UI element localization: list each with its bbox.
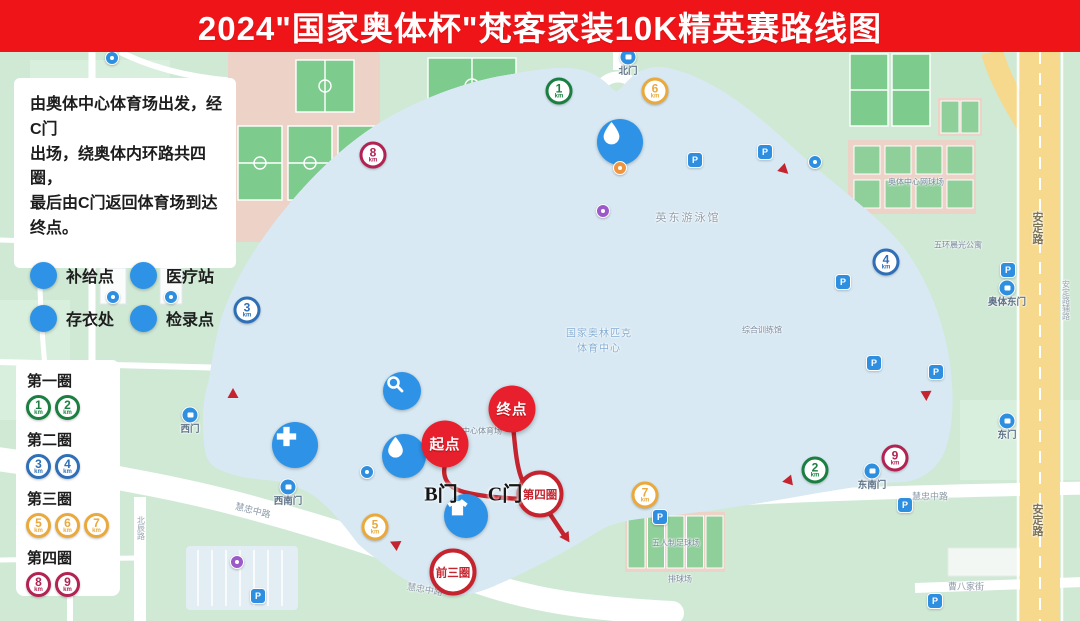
parking-icon: P xyxy=(652,509,668,525)
route-description-line: 最后由C门返回体育场到达终点。 xyxy=(30,192,224,242)
legend-item: 补给点 xyxy=(30,262,124,289)
lap-km-badge: 6km xyxy=(55,513,80,538)
legend-label: 补给点 xyxy=(66,263,114,287)
parking-icon: P xyxy=(866,355,882,371)
map-label: 五环晨光公寓 xyxy=(934,240,982,251)
route-description-line: 由奥体中心体育场出发，经C门 xyxy=(30,93,224,143)
route-km-marker: 9km xyxy=(882,445,909,472)
gate-label: 东门 xyxy=(997,427,1016,441)
lap-group: 第一圈 1km2km xyxy=(26,370,120,420)
water-drop-icon xyxy=(382,434,426,478)
route-km-marker: 1km xyxy=(546,78,573,105)
parking-icon: P xyxy=(250,588,266,604)
route-km-marker: 5km xyxy=(362,514,389,541)
parking-icon: P xyxy=(835,274,851,290)
page-title: 2024"国家奥体杯"梵客家装10K精英赛路线图 xyxy=(198,2,882,50)
map-label: 体育中心 xyxy=(577,340,621,355)
magnifier-icon xyxy=(383,372,421,410)
map-label: 综合训练馆 xyxy=(742,325,782,336)
parking-icon: P xyxy=(1000,262,1016,278)
parking-icon: P xyxy=(897,497,913,513)
gate-label: 西南门 xyxy=(274,493,303,507)
map-poi-icon xyxy=(613,161,627,175)
route-km-marker: 2km xyxy=(802,457,829,484)
info-panel: 由奥体中心体育场出发，经C门 出场，绕奥体内环路共四圈， 最后由C门返回体育场到… xyxy=(14,78,236,268)
map-poi-icon xyxy=(230,555,244,569)
map-label: 中心体育场 xyxy=(462,426,502,437)
map-label: 北辰路 xyxy=(136,516,147,540)
map-label: 英东游泳馆 xyxy=(656,209,721,225)
lap-name: 第二圈 xyxy=(27,429,120,450)
map-label: 慧忠中路 xyxy=(234,499,272,520)
map-label: 安定路辅路 xyxy=(1061,280,1072,320)
map-label: 五人制足球场 xyxy=(652,538,700,549)
route-km-marker: 6km xyxy=(642,78,669,105)
lap-km-badge: 1km xyxy=(26,395,51,420)
map-label: 安定路 xyxy=(1029,504,1045,537)
map-poi-icon xyxy=(596,204,610,218)
water-drop-icon xyxy=(597,119,643,165)
map-label: 排球场 xyxy=(668,574,692,585)
legend-item: 检录点 xyxy=(130,305,224,332)
finish-marker: 终点 xyxy=(489,386,536,433)
lap-km-badge: 5km xyxy=(26,513,51,538)
route-description-line: 出场，绕奥体内环路共四圈， xyxy=(30,143,224,193)
lap-km-badge: 3km xyxy=(26,454,51,479)
lap-km-badge: 4km xyxy=(55,454,80,479)
lap-km-badge: 7km xyxy=(84,513,109,538)
magnifier-icon xyxy=(130,305,157,332)
map-poi-icon xyxy=(808,155,822,169)
start-marker: 起点 xyxy=(422,421,469,468)
title-banner: 2024"国家奥体杯"梵客家装10K精英赛路线图 xyxy=(0,0,1080,52)
map-poi-icon xyxy=(360,465,374,479)
gate-label: 奥体东门 xyxy=(988,294,1026,308)
gate-label: 北门 xyxy=(618,63,637,77)
route-km-marker: 4km xyxy=(873,249,900,276)
route-km-marker: 7km xyxy=(632,482,659,509)
parking-icon: P xyxy=(927,593,943,609)
parking-icon: P xyxy=(757,144,773,160)
legend: 补给点 医疗站 存衣处 检录点 xyxy=(30,262,224,332)
medical-cross-icon xyxy=(272,422,318,468)
water-drop-icon xyxy=(30,262,57,289)
lap-group: 第四圈 8km9km xyxy=(26,547,120,597)
legend-item: 医疗站 xyxy=(130,262,224,289)
lap-km-badge: 2km xyxy=(55,395,80,420)
race-route-map-page: 1km2km3km4km5km6km7km8km9km北门西门西南门东南门奥体东… xyxy=(0,0,1080,621)
gate-c-label: C门 xyxy=(488,478,522,507)
lap-name: 第三圈 xyxy=(27,488,120,509)
route-description: 由奥体中心体育场出发，经C门 出场，绕奥体内环路共四圈， 最后由C门返回体育场到… xyxy=(30,93,224,242)
medical-cross-icon xyxy=(130,262,157,289)
map-label: 奥体中心网球场 xyxy=(888,177,944,188)
parking-icon: P xyxy=(928,364,944,380)
lap4-badge: 第四圈 xyxy=(517,471,564,518)
map-label: 安定路 xyxy=(1029,212,1045,245)
lap-group: 第二圈 3km4km xyxy=(26,429,120,479)
lap-name: 第一圈 xyxy=(27,370,120,391)
legend-label: 检录点 xyxy=(166,306,214,330)
map-poi-icon xyxy=(105,51,119,65)
legend-label: 医疗站 xyxy=(166,263,214,287)
legend-label: 存衣处 xyxy=(66,306,114,330)
route-km-marker: 3km xyxy=(234,297,261,324)
map-label: 慧忠中路 xyxy=(912,490,948,503)
map-label: 国家奥林匹克 xyxy=(566,325,632,340)
laps-panel: 第一圈 1km2km第二圈 3km4km第三圈 5km6km7km第四圈 8km… xyxy=(16,360,120,596)
lap-group: 第三圈 5km6km7km xyxy=(26,488,120,538)
lap-name: 第四圈 xyxy=(27,547,120,568)
route-km-marker: 8km xyxy=(360,142,387,169)
gate-label: 西门 xyxy=(180,421,199,435)
gate-b-label: B门 xyxy=(424,478,457,507)
lap-km-badge: 8km xyxy=(26,572,51,597)
lap-km-badge: 9km xyxy=(55,572,80,597)
map-label: 曹八家街 xyxy=(948,580,984,593)
lap123-badge: 前三圈 xyxy=(430,549,477,596)
gate-label: 东南门 xyxy=(858,477,887,491)
legend-item: 存衣处 xyxy=(30,305,124,332)
parking-icon: P xyxy=(687,152,703,168)
shirt-icon xyxy=(30,305,57,332)
